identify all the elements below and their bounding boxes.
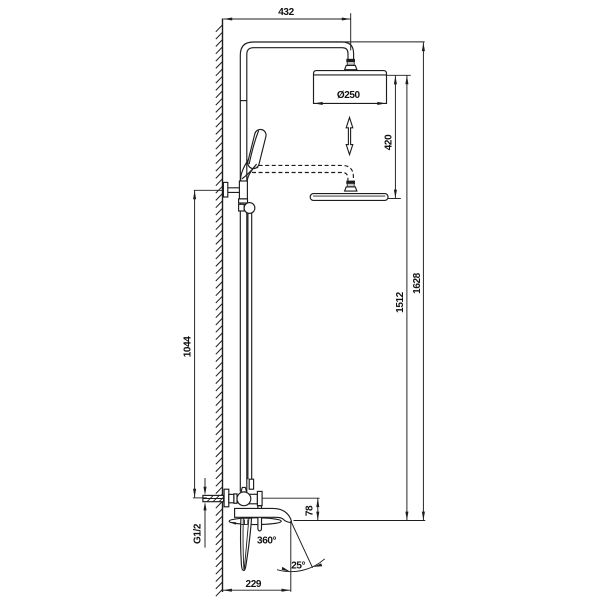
svg-text:25°: 25° [291, 560, 305, 571]
svg-text:229: 229 [246, 579, 262, 590]
svg-text:360°: 360° [257, 536, 276, 547]
svg-text:1044: 1044 [183, 336, 194, 357]
svg-text:78: 78 [304, 505, 315, 516]
svg-text:420: 420 [384, 134, 395, 150]
svg-text:432: 432 [278, 7, 294, 18]
svg-text:Ø250: Ø250 [337, 90, 361, 101]
svg-text:1512: 1512 [395, 291, 406, 312]
svg-text:G1/2: G1/2 [192, 523, 203, 544]
svg-text:1628: 1628 [412, 272, 423, 293]
